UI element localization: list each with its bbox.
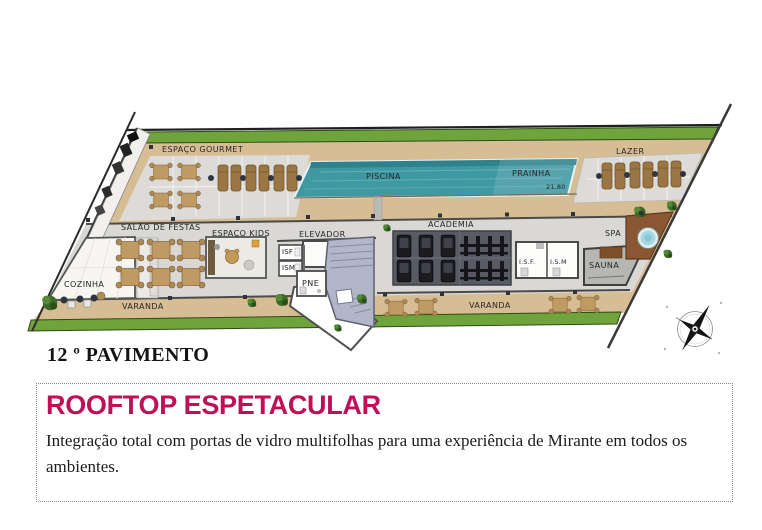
brochure-page: ESPAÇO GOURMET PISCINA PRAINHA 21,80 LAZ… xyxy=(0,0,762,530)
kids-room xyxy=(206,237,266,278)
info-description: Integração total com portas de vidro mul… xyxy=(46,428,714,481)
info-box: ROOFTOP ESPETACULAR Integração total com… xyxy=(36,383,733,502)
compass-rose-icon xyxy=(664,294,727,360)
gym-bathrooms xyxy=(516,242,578,278)
jacuzzi xyxy=(638,228,659,249)
pne-room xyxy=(297,271,326,296)
floor-caption: 12 º PAVIMENTO xyxy=(47,344,209,367)
sun-loungers-gourmet xyxy=(208,165,302,191)
info-title: ROOFTOP ESPETACULAR xyxy=(46,390,722,421)
